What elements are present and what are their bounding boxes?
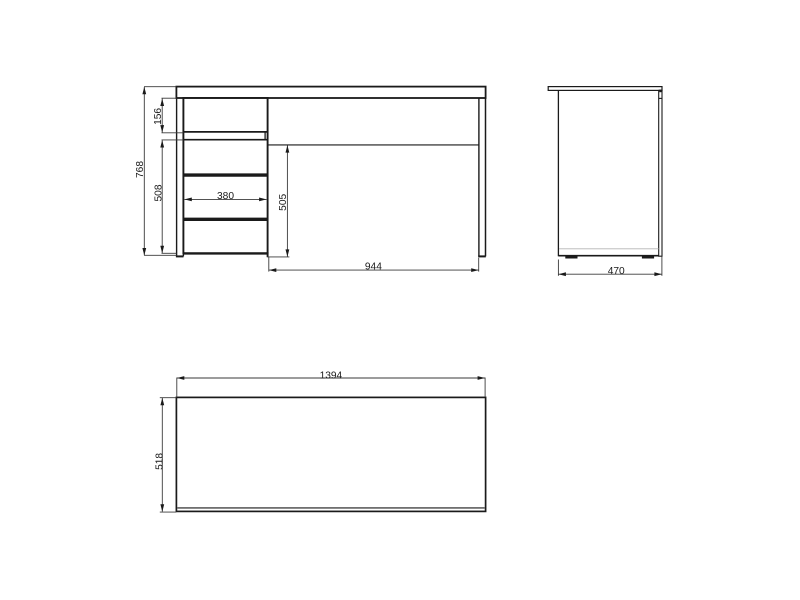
svg-text:505: 505 — [278, 193, 289, 210]
svg-text:944: 944 — [365, 262, 382, 273]
svg-text:380: 380 — [217, 191, 234, 202]
svg-text:470: 470 — [608, 266, 625, 277]
svg-text:156: 156 — [153, 108, 164, 125]
svg-text:1394: 1394 — [320, 370, 343, 381]
svg-text:518: 518 — [155, 453, 166, 470]
svg-text:768: 768 — [135, 161, 146, 178]
svg-text:508: 508 — [153, 184, 164, 201]
